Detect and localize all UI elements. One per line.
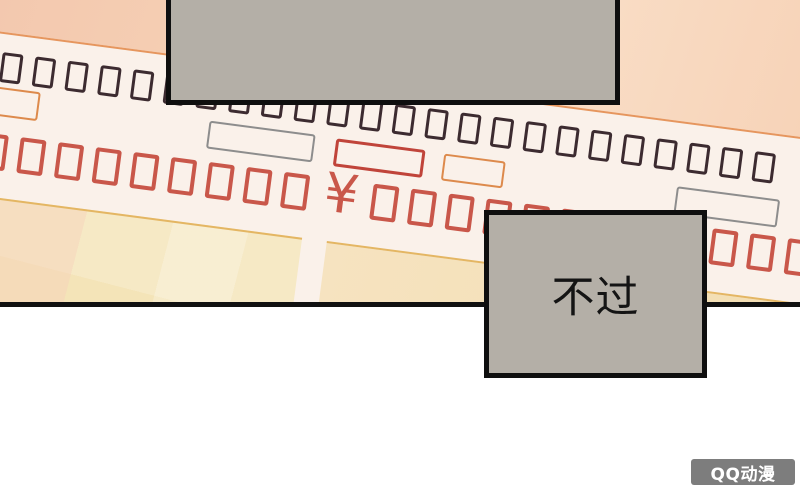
redacted-glyph-box: [407, 189, 437, 228]
yen-symbol: ¥: [321, 165, 362, 223]
redacted-glyph-box: [280, 172, 310, 211]
caption-box-top: [166, 0, 620, 105]
comic-page: ¥ 不过 QQ动漫: [0, 0, 800, 496]
redacted-glyph-box: [555, 125, 580, 157]
redacted-glyph-box: [784, 238, 800, 277]
redacted-glyph-box: [719, 147, 744, 179]
redacted-glyph-box: [91, 147, 121, 186]
redacted-glyph-box: [0, 132, 9, 171]
speech-box: 不过: [484, 210, 707, 378]
redacted-glyph-box: [64, 61, 89, 93]
redacted-glyph-box: [424, 108, 449, 140]
redacted-glyph-box: [129, 152, 159, 191]
redacted-glyph-box: [751, 151, 776, 183]
watermark-badge: QQ动漫: [691, 459, 795, 485]
redacted-glyph-box: [32, 56, 57, 88]
redacted-glyph-box: [588, 130, 613, 162]
redacted-glyph-box: [242, 167, 272, 206]
redacted-glyph-box: [708, 228, 738, 267]
redacted-glyph-box: [167, 157, 197, 196]
redacted-glyph-box: [391, 104, 416, 136]
redacted-glyph-box: [621, 134, 646, 166]
watermark-text: QQ动漫: [711, 460, 776, 485]
redacted-glyph-box: [130, 69, 155, 101]
redacted-glyph-box: [746, 233, 776, 272]
orange-field-right: [441, 154, 506, 189]
gray-field-center: [206, 121, 316, 163]
redacted-glyph-box: [0, 52, 24, 84]
redacted-glyph-box: [16, 137, 46, 176]
redacted-glyph-box: [522, 121, 547, 153]
redacted-glyph-box: [444, 194, 474, 233]
redacted-glyph-box: [369, 184, 399, 223]
redacted-glyph-box: [490, 117, 515, 149]
redacted-glyph-box: [457, 112, 482, 144]
redacted-glyph-box: [205, 162, 235, 201]
redacted-glyph-box: [686, 143, 711, 175]
redacted-glyph-box: [54, 142, 84, 181]
redacted-glyph-box: [97, 65, 122, 97]
redacted-glyph-box: [653, 138, 678, 170]
